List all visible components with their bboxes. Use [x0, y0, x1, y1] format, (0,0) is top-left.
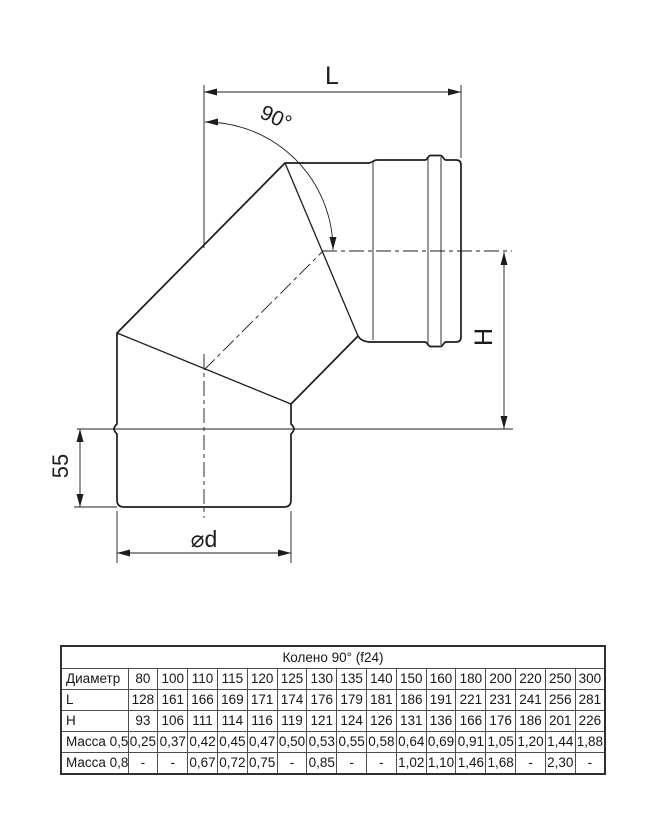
elbow-outline	[114, 156, 461, 508]
spec-row: Диаметр801001101151201251301351401501601…	[61, 669, 605, 690]
arrowhead-H-bottom	[501, 416, 508, 429]
spec-title-row: Колено 90° (f24)	[61, 646, 605, 669]
spec-cell: 171	[247, 690, 277, 711]
spec-cell: 166	[456, 711, 486, 732]
arrowhead-55-bottom	[77, 494, 84, 507]
spec-cell: 169	[217, 690, 247, 711]
spec-row: L128161166169171174176179181186191221231…	[61, 690, 605, 711]
spec-cell: 1,46	[456, 753, 486, 775]
spec-cell: 1,88	[575, 732, 605, 753]
spec-row-label: L	[61, 690, 128, 711]
arrowhead-H-top	[501, 252, 508, 265]
spec-row-label: Масса 0,5	[61, 732, 128, 753]
spec-cell: 179	[337, 690, 367, 711]
spec-cell: 1,20	[516, 732, 546, 753]
spec-cell: 128	[128, 690, 158, 711]
spec-cell: 93	[128, 711, 158, 732]
spec-cell: 300	[575, 669, 605, 690]
spec-cell: 231	[486, 690, 516, 711]
page: L 90° H 55 ⌀d Колено 90° (f24) Диаметр80…	[0, 0, 660, 830]
spec-cell: 124	[337, 711, 367, 732]
spec-cell: 1,02	[396, 753, 426, 775]
spec-cell: 181	[367, 690, 397, 711]
spec-cell: 1,10	[426, 753, 456, 775]
spec-cell: 0,67	[188, 753, 218, 775]
spec-cell: 125	[277, 669, 307, 690]
dim-label-height: H	[470, 328, 498, 346]
spec-cell: 160	[426, 669, 456, 690]
spec-cell: 0,50	[277, 732, 307, 753]
spec-cell: 2,30	[545, 753, 575, 775]
spec-cell: 176	[486, 711, 516, 732]
spec-cell: -	[277, 753, 307, 775]
spec-cell: -	[367, 753, 397, 775]
spec-cell: 130	[307, 669, 337, 690]
spec-cell: 0,25	[128, 732, 158, 753]
spec-cell: 140	[367, 669, 397, 690]
spec-cell: 0,85	[307, 753, 337, 775]
spec-cell: 226	[575, 711, 605, 732]
spec-cell: 0,42	[188, 732, 218, 753]
spec-cell: 166	[188, 690, 218, 711]
spec-cell: -	[128, 753, 158, 775]
spec-cell: 106	[158, 711, 188, 732]
arrowhead-L-right	[448, 89, 461, 96]
spec-table-body: Колено 90° (f24) Диаметр8010011011512012…	[61, 646, 605, 774]
extension-lines	[74, 85, 513, 563]
spec-cell: 1,44	[545, 732, 575, 753]
spec-cell: 100	[158, 669, 188, 690]
spec-table: Колено 90° (f24) Диаметр8010011011512012…	[60, 645, 606, 775]
centerlines	[204, 251, 512, 518]
spec-cell: 150	[396, 669, 426, 690]
spec-cell: 256	[545, 690, 575, 711]
dim-label-length: L	[325, 62, 339, 90]
spec-cell: 0,47	[247, 732, 277, 753]
spec-cell: 131	[396, 711, 426, 732]
dim-label-diameter: ⌀d	[191, 526, 218, 552]
spec-cell: 1,05	[486, 732, 516, 753]
arrowhead-arc-end	[330, 237, 337, 250]
spec-cell: 174	[277, 690, 307, 711]
spec-cell: 161	[158, 690, 188, 711]
spec-row: H931061111141161191211241261311361661761…	[61, 711, 605, 732]
spec-row-label: Масса 0,8	[61, 753, 128, 775]
spec-cell: 191	[426, 690, 456, 711]
arrowhead-L-left	[204, 89, 217, 96]
arrowheads	[77, 89, 508, 557]
spec-cell: 80	[128, 669, 158, 690]
spec-cell: 0,58	[367, 732, 397, 753]
spec-cell: 200	[486, 669, 516, 690]
spec-cell: 0,91	[456, 732, 486, 753]
spec-cell: 120	[247, 669, 277, 690]
joint-lines	[117, 163, 358, 404]
spec-cell: 221	[456, 690, 486, 711]
spec-cell: 114	[217, 711, 247, 732]
arrowhead-diameter-right	[278, 550, 291, 557]
spec-cell: 281	[575, 690, 605, 711]
spec-cell: 186	[516, 711, 546, 732]
spec-cell: 241	[516, 690, 546, 711]
spec-cell: -	[575, 753, 605, 775]
spec-cell: 0,69	[426, 732, 456, 753]
spec-cell: 110	[188, 669, 218, 690]
arrowhead-arc-start	[205, 119, 218, 126]
spec-cell: 186	[396, 690, 426, 711]
spec-cell: 126	[367, 711, 397, 732]
spec-cell: 115	[217, 669, 247, 690]
spec-row-label: H	[61, 711, 128, 732]
spec-cell: -	[516, 753, 546, 775]
spec-cell: 119	[277, 711, 307, 732]
spec-cell: 116	[247, 711, 277, 732]
spec-row: Масса 0,50,250,370,420,450,470,500,530,5…	[61, 732, 605, 753]
dim-label-crimp: 55	[48, 454, 73, 478]
spec-row: Масса 0,8--0,670,720,75-0,85--1,021,101,…	[61, 753, 605, 775]
spec-cell: 0,37	[158, 732, 188, 753]
spec-cell: 176	[307, 690, 337, 711]
spec-cell: 1,68	[486, 753, 516, 775]
spec-cell: 0,55	[337, 732, 367, 753]
elbow-diagram: L 90° H 55 ⌀d	[0, 0, 660, 645]
spec-cell: 0,53	[307, 732, 337, 753]
spec-cell: 0,45	[217, 732, 247, 753]
spec-cell: 250	[545, 669, 575, 690]
spec-cell: 135	[337, 669, 367, 690]
spec-cell: 121	[307, 711, 337, 732]
spec-cell: -	[158, 753, 188, 775]
arrowhead-diameter-left	[117, 550, 130, 557]
centerline-diagonal	[204, 252, 322, 370]
spec-table-title: Колено 90° (f24)	[61, 646, 605, 669]
dim-label-angle: 90°	[256, 101, 295, 135]
spec-cell: 201	[545, 711, 575, 732]
spec-cell: -	[337, 753, 367, 775]
spec-cell: 136	[426, 711, 456, 732]
spec-cell: 111	[188, 711, 218, 732]
arrowhead-55-top	[77, 429, 84, 442]
spec-cell: 0,75	[247, 753, 277, 775]
spec-cell: 180	[456, 669, 486, 690]
spec-cell: 0,72	[217, 753, 247, 775]
spec-row-label: Диаметр	[61, 669, 128, 690]
spec-cell: 220	[516, 669, 546, 690]
miter-joint-upper	[285, 163, 358, 336]
spec-cell: 0,64	[396, 732, 426, 753]
